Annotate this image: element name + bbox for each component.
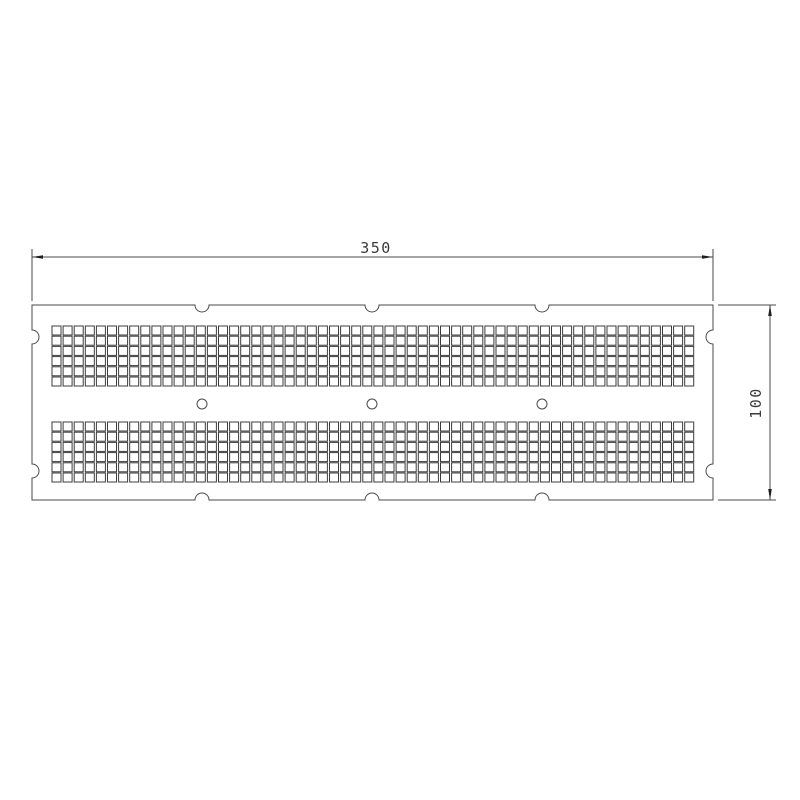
square-hole — [341, 463, 350, 472]
square-hole — [296, 463, 305, 472]
square-hole — [518, 473, 527, 482]
square-hole — [374, 442, 383, 451]
square-hole — [96, 346, 105, 355]
square-hole — [141, 346, 150, 355]
square-hole — [285, 432, 294, 441]
square-hole — [407, 336, 416, 345]
square-hole — [563, 357, 572, 366]
square-hole — [74, 422, 83, 431]
square-hole — [341, 357, 350, 366]
square-hole — [418, 377, 427, 386]
square-hole — [585, 473, 594, 482]
square-hole — [185, 326, 194, 335]
square-hole — [263, 326, 272, 335]
square-hole — [574, 463, 583, 472]
square-hole — [496, 326, 505, 335]
square-hole — [130, 442, 139, 451]
square-hole — [296, 473, 305, 482]
square-hole — [441, 442, 450, 451]
square-hole — [141, 473, 150, 482]
square-hole — [596, 422, 605, 431]
square-hole — [507, 463, 516, 472]
square-hole — [219, 453, 228, 462]
square-hole — [96, 463, 105, 472]
square-hole — [629, 453, 638, 462]
square-hole — [119, 422, 128, 431]
square-hole — [163, 453, 172, 462]
square-hole — [96, 422, 105, 431]
square-hole — [85, 473, 94, 482]
square-hole — [540, 336, 549, 345]
square-hole — [452, 367, 461, 376]
square-hole — [585, 326, 594, 335]
square-hole — [141, 463, 150, 472]
square-hole — [674, 463, 683, 472]
square-hole — [529, 473, 538, 482]
square-hole — [663, 346, 672, 355]
square-hole — [363, 442, 372, 451]
square-hole — [252, 422, 261, 431]
square-hole — [529, 336, 538, 345]
square-hole — [274, 473, 283, 482]
square-hole — [685, 453, 694, 462]
square-hole — [407, 422, 416, 431]
square-hole — [108, 432, 117, 441]
square-hole — [230, 357, 239, 366]
square-hole — [352, 453, 361, 462]
square-hole — [441, 377, 450, 386]
square-hole — [540, 453, 549, 462]
square-hole — [518, 453, 527, 462]
square-hole — [174, 432, 183, 441]
square-hole — [418, 432, 427, 441]
square-hole — [640, 432, 649, 441]
square-hole — [108, 346, 117, 355]
square-hole — [163, 326, 172, 335]
square-hole — [418, 336, 427, 345]
square-hole — [296, 442, 305, 451]
square-hole — [207, 422, 216, 431]
square-hole — [574, 453, 583, 462]
square-hole — [318, 367, 327, 376]
square-hole — [330, 336, 339, 345]
square-hole — [207, 326, 216, 335]
square-hole — [196, 463, 205, 472]
square-hole — [574, 473, 583, 482]
square-hole — [507, 367, 516, 376]
round-hole — [197, 399, 207, 409]
square-hole — [85, 453, 94, 462]
square-hole — [518, 326, 527, 335]
square-hole — [74, 463, 83, 472]
square-hole — [85, 326, 94, 335]
square-hole — [85, 357, 94, 366]
square-hole — [318, 432, 327, 441]
square-hole — [474, 432, 483, 441]
square-hole — [463, 432, 472, 441]
square-hole — [185, 473, 194, 482]
square-hole — [274, 377, 283, 386]
square-hole — [74, 367, 83, 376]
square-hole — [418, 473, 427, 482]
square-hole — [385, 442, 394, 451]
square-hole — [474, 473, 483, 482]
square-hole — [374, 473, 383, 482]
square-hole — [296, 422, 305, 431]
square-hole — [585, 432, 594, 441]
square-hole — [441, 326, 450, 335]
square-hole — [563, 422, 572, 431]
square-hole — [330, 432, 339, 441]
square-hole — [196, 453, 205, 462]
square-hole — [352, 463, 361, 472]
square-hole — [196, 357, 205, 366]
square-hole — [363, 336, 372, 345]
square-hole — [241, 336, 250, 345]
square-hole — [552, 453, 561, 462]
square-hole — [230, 432, 239, 441]
square-hole — [396, 463, 405, 472]
square-hole — [441, 432, 450, 441]
width-dimension-label: 350 — [360, 239, 392, 257]
square-hole — [52, 442, 61, 451]
square-hole — [685, 432, 694, 441]
square-hole — [674, 336, 683, 345]
square-hole — [452, 326, 461, 335]
square-hole — [518, 367, 527, 376]
square-hole — [407, 453, 416, 462]
square-hole — [230, 422, 239, 431]
square-hole — [74, 346, 83, 355]
square-hole — [263, 377, 272, 386]
square-hole — [574, 326, 583, 335]
square-hole — [63, 442, 72, 451]
square-hole — [518, 357, 527, 366]
square-hole — [452, 463, 461, 472]
square-hole — [474, 422, 483, 431]
square-hole — [352, 326, 361, 335]
square-hole — [141, 377, 150, 386]
square-hole — [540, 377, 549, 386]
square-hole — [318, 473, 327, 482]
square-hole — [63, 422, 72, 431]
square-hole — [196, 377, 205, 386]
square-hole — [618, 377, 627, 386]
square-hole — [585, 442, 594, 451]
square-hole — [629, 336, 638, 345]
square-hole — [374, 453, 383, 462]
square-hole — [152, 473, 161, 482]
square-hole — [418, 357, 427, 366]
square-hole — [174, 422, 183, 431]
square-hole — [540, 422, 549, 431]
square-hole — [640, 453, 649, 462]
square-hole — [441, 473, 450, 482]
square-hole — [629, 473, 638, 482]
square-hole — [341, 422, 350, 431]
square-hole — [507, 346, 516, 355]
square-hole — [119, 442, 128, 451]
square-hole — [74, 473, 83, 482]
square-hole — [352, 377, 361, 386]
square-hole — [207, 367, 216, 376]
square-hole — [330, 357, 339, 366]
square-hole — [663, 367, 672, 376]
square-hole — [651, 326, 660, 335]
square-hole — [163, 346, 172, 355]
square-hole — [563, 463, 572, 472]
square-hole — [96, 336, 105, 345]
square-hole — [407, 357, 416, 366]
square-hole — [163, 432, 172, 441]
square-hole — [629, 422, 638, 431]
square-hole — [285, 422, 294, 431]
square-hole — [674, 422, 683, 431]
square-hole — [629, 367, 638, 376]
square-hole — [452, 453, 461, 462]
square-hole — [663, 432, 672, 441]
square-hole — [185, 453, 194, 462]
square-hole — [163, 463, 172, 472]
square-hole — [529, 463, 538, 472]
square-hole — [185, 463, 194, 472]
square-hole — [174, 377, 183, 386]
square-hole — [374, 422, 383, 431]
square-hole — [429, 422, 438, 431]
square-hole — [141, 357, 150, 366]
square-hole — [552, 432, 561, 441]
square-hole — [441, 422, 450, 431]
square-hole — [596, 326, 605, 335]
square-hole — [485, 326, 494, 335]
square-hole — [207, 346, 216, 355]
square-hole — [163, 367, 172, 376]
square-hole — [574, 377, 583, 386]
square-hole — [418, 422, 427, 431]
square-hole — [407, 367, 416, 376]
square-hole — [74, 377, 83, 386]
square-hole — [263, 463, 272, 472]
square-hole — [141, 336, 150, 345]
square-hole — [85, 432, 94, 441]
square-hole — [540, 463, 549, 472]
square-hole — [463, 326, 472, 335]
square-hole — [607, 442, 616, 451]
square-hole — [119, 377, 128, 386]
square-hole — [141, 326, 150, 335]
square-hole — [74, 336, 83, 345]
square-hole — [463, 453, 472, 462]
square-hole — [529, 422, 538, 431]
square-hole — [363, 357, 372, 366]
square-hole — [196, 442, 205, 451]
square-hole — [141, 442, 150, 451]
square-hole — [574, 367, 583, 376]
square-hole — [296, 346, 305, 355]
square-hole — [230, 463, 239, 472]
square-hole — [130, 422, 139, 431]
square-hole — [63, 377, 72, 386]
square-hole — [518, 432, 527, 441]
square-hole — [152, 442, 161, 451]
square-hole — [141, 422, 150, 431]
square-hole — [396, 442, 405, 451]
square-hole — [485, 442, 494, 451]
square-hole — [108, 442, 117, 451]
square-hole — [474, 346, 483, 355]
square-hole — [307, 336, 316, 345]
square-hole — [629, 377, 638, 386]
square-hole — [374, 367, 383, 376]
square-hole — [341, 377, 350, 386]
square-hole — [219, 432, 228, 441]
square-hole — [585, 336, 594, 345]
square-hole — [119, 432, 128, 441]
square-hole — [429, 442, 438, 451]
square-hole — [108, 463, 117, 472]
square-hole — [663, 453, 672, 462]
square-hole — [263, 336, 272, 345]
square-hole — [63, 463, 72, 472]
square-hole — [529, 442, 538, 451]
square-hole — [318, 326, 327, 335]
square-hole — [485, 473, 494, 482]
square-hole — [674, 473, 683, 482]
square-hole — [429, 357, 438, 366]
square-hole — [496, 442, 505, 451]
square-hole — [529, 453, 538, 462]
square-hole — [640, 377, 649, 386]
square-hole — [307, 346, 316, 355]
square-hole — [108, 357, 117, 366]
square-hole — [485, 377, 494, 386]
square-hole — [552, 326, 561, 335]
square-hole — [563, 336, 572, 345]
square-hole — [363, 473, 372, 482]
square-hole — [85, 442, 94, 451]
square-hole — [307, 453, 316, 462]
square-hole — [374, 357, 383, 366]
square-hole — [285, 463, 294, 472]
square-hole — [341, 432, 350, 441]
square-hole — [163, 336, 172, 345]
square-hole — [96, 377, 105, 386]
square-hole — [230, 377, 239, 386]
square-hole — [507, 336, 516, 345]
square-hole — [263, 357, 272, 366]
square-hole — [318, 346, 327, 355]
square-hole — [85, 422, 94, 431]
square-hole — [552, 463, 561, 472]
square-hole — [207, 432, 216, 441]
square-hole — [252, 346, 261, 355]
square-hole — [374, 432, 383, 441]
square-hole — [285, 346, 294, 355]
square-hole — [396, 422, 405, 431]
square-hole — [607, 346, 616, 355]
square-hole — [241, 346, 250, 355]
square-hole — [640, 442, 649, 451]
square-hole — [352, 442, 361, 451]
square-hole — [185, 377, 194, 386]
square-hole — [85, 377, 94, 386]
square-hole — [52, 422, 61, 431]
square-hole — [96, 453, 105, 462]
square-hole — [252, 432, 261, 441]
square-hole — [352, 432, 361, 441]
square-hole — [207, 473, 216, 482]
square-hole — [130, 453, 139, 462]
square-hole — [307, 442, 316, 451]
square-hole — [507, 357, 516, 366]
square-hole — [241, 473, 250, 482]
square-hole — [274, 326, 283, 335]
square-hole — [429, 326, 438, 335]
square-hole — [651, 346, 660, 355]
square-hole — [418, 442, 427, 451]
square-hole — [452, 432, 461, 441]
square-hole — [307, 357, 316, 366]
square-hole — [685, 346, 694, 355]
square-hole — [207, 357, 216, 366]
square-hole — [496, 367, 505, 376]
square-hole — [596, 367, 605, 376]
square-hole — [196, 473, 205, 482]
square-hole — [352, 367, 361, 376]
square-hole — [396, 357, 405, 366]
square-hole — [507, 377, 516, 386]
square-hole — [152, 377, 161, 386]
square-hole — [685, 473, 694, 482]
square-hole — [552, 336, 561, 345]
square-hole — [219, 463, 228, 472]
square-hole — [219, 442, 228, 451]
square-hole — [452, 357, 461, 366]
square-hole — [330, 326, 339, 335]
square-hole — [474, 442, 483, 451]
square-hole — [207, 453, 216, 462]
cad-drawing-canvas: 350 100 — [0, 0, 800, 800]
width-dimension-group: 350 — [32, 239, 713, 301]
height-dimension-label: 100 — [747, 387, 765, 419]
square-hole — [119, 463, 128, 472]
square-hole — [651, 432, 660, 441]
square-hole — [330, 346, 339, 355]
square-hole — [385, 357, 394, 366]
square-hole — [496, 432, 505, 441]
square-hole — [651, 453, 660, 462]
square-hole — [96, 432, 105, 441]
square-hole — [629, 442, 638, 451]
square-hole — [563, 326, 572, 335]
square-hole — [96, 357, 105, 366]
square-hole — [407, 473, 416, 482]
square-hole — [330, 442, 339, 451]
square-hole — [241, 326, 250, 335]
square-hole — [596, 453, 605, 462]
square-hole — [540, 432, 549, 441]
square-hole — [252, 453, 261, 462]
square-hole — [651, 442, 660, 451]
square-hole — [141, 367, 150, 376]
square-hole — [463, 422, 472, 431]
square-hole — [596, 473, 605, 482]
square-hole — [607, 432, 616, 441]
square-hole — [252, 377, 261, 386]
square-hole — [518, 346, 527, 355]
square-hole — [685, 422, 694, 431]
square-hole — [596, 346, 605, 355]
